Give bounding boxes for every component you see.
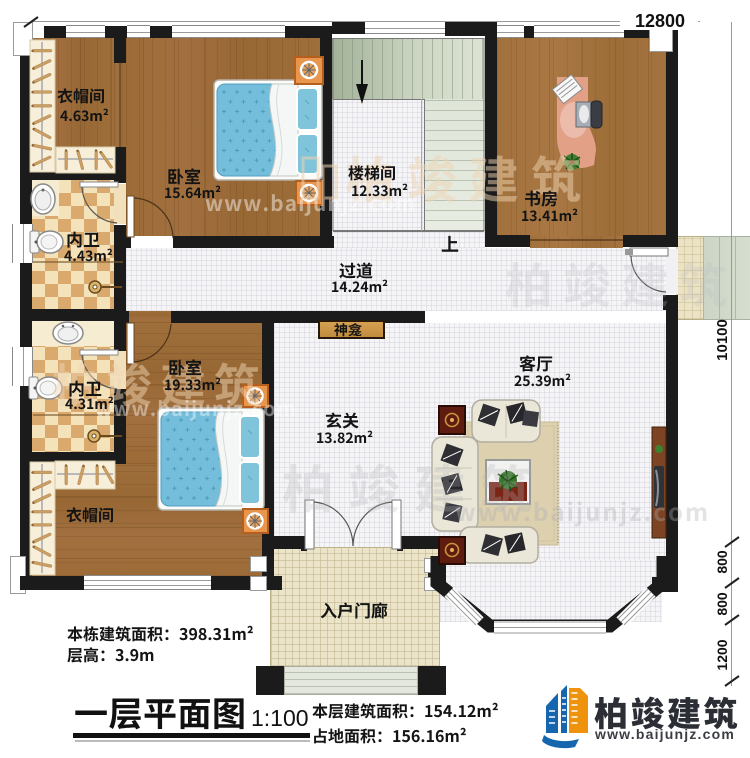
svg-text:800: 800 (714, 592, 730, 616)
svg-text:1200: 1200 (714, 639, 730, 670)
svg-text:800: 800 (714, 550, 730, 574)
svg-text:1:100: 1:100 (251, 705, 309, 731)
svg-text:10100: 10100 (714, 319, 731, 361)
svg-text:www.baijunjz.com: www.baijunjz.com (594, 726, 735, 742)
svg-text:12800: 12800 (635, 11, 685, 31)
